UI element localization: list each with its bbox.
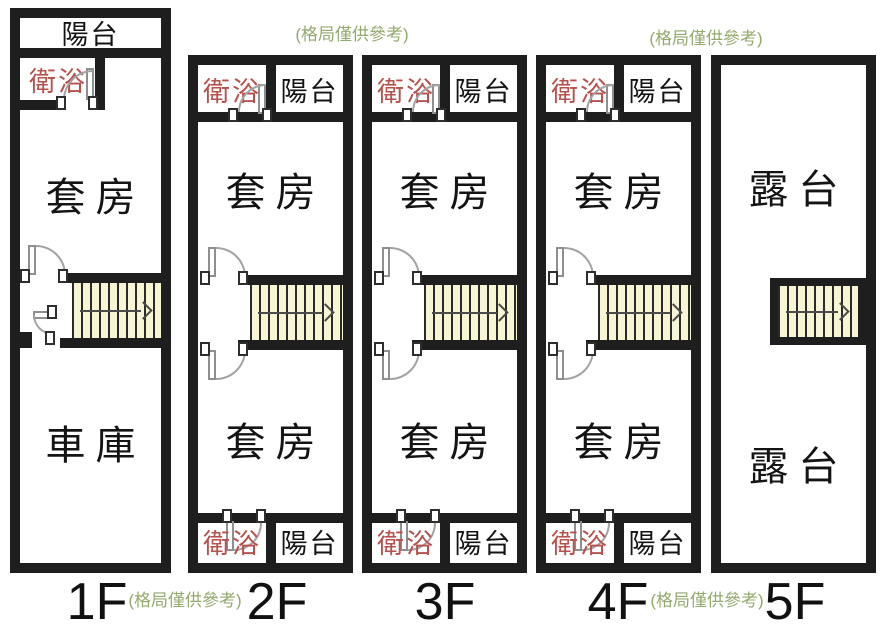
- wall-segment: [60, 273, 161, 283]
- stair-direction-arrow: [258, 312, 323, 314]
- door-jamb: [412, 342, 422, 356]
- room-label-bathroom: 衛浴: [546, 521, 614, 561]
- room-label-suite: 套房: [546, 413, 691, 465]
- stair-arrow-head-icon: [316, 303, 334, 321]
- room-label-balcony: 陽台: [624, 69, 691, 109]
- room-label-balcony: 陽台: [276, 521, 343, 561]
- room-label-suite: 套房: [372, 413, 517, 465]
- wall-segment: [586, 340, 691, 350]
- door-jamb: [412, 271, 422, 285]
- door-jamb: [58, 269, 68, 283]
- door-jamb: [200, 342, 210, 356]
- stair-arrow-head-icon: [831, 302, 849, 320]
- staircase: [72, 283, 161, 338]
- door-jamb: [586, 342, 596, 356]
- wall-segment: [20, 100, 60, 110]
- stair-enclosure: [770, 278, 866, 345]
- reference-note: (格局僅供參考): [586, 24, 826, 49]
- room-label-terrace: 露台: [721, 160, 866, 212]
- door-jamb: [200, 271, 210, 285]
- door-jamb: [238, 271, 248, 285]
- wall-segment: [20, 48, 161, 58]
- door-jamb: [45, 331, 55, 345]
- stair-arrow-head-icon: [134, 301, 152, 319]
- room-label-balcony: 陽台: [624, 521, 691, 561]
- floorplan-canvas: (格局僅供參考) (格局僅供參考) 陽台 衛浴 套房 車庫 衛浴: [0, 0, 889, 630]
- floorplan-1f: 陽台 衛浴 套房 車庫: [10, 8, 171, 573]
- door-jamb: [548, 271, 558, 285]
- stair-arrow-head-icon: [490, 303, 508, 321]
- wall-segment: [238, 340, 343, 350]
- wall-segment: [266, 523, 276, 563]
- door-jamb: [88, 96, 98, 110]
- room-label-balcony: 陽台: [20, 16, 161, 48]
- floor-label-2f: 2F: [247, 572, 308, 632]
- floorplan-5f: 露台 露台: [711, 55, 876, 573]
- door-jamb: [262, 108, 272, 122]
- floorplan-3f: 衛浴 陽台 套房 套房 衛浴 陽台: [362, 55, 527, 573]
- reference-note: (格局僅供參考): [232, 20, 472, 45]
- stair-arrow-head-icon: [664, 303, 682, 321]
- door-jamb: [374, 271, 384, 285]
- floor-label-3f: 3F: [415, 572, 476, 632]
- wall-segment: [614, 65, 624, 112]
- door-jamb: [548, 342, 558, 356]
- door-jamb: [20, 269, 30, 283]
- room-label-balcony: 陽台: [450, 69, 517, 109]
- staircase: [250, 285, 343, 340]
- room-label-garage: 車庫: [20, 416, 161, 468]
- room-label-terrace: 露台: [721, 437, 866, 489]
- room-label-balcony: 陽台: [276, 69, 343, 109]
- room-label-suite: 套房: [198, 163, 343, 215]
- door-jamb: [402, 108, 412, 122]
- door-jamb: [374, 342, 384, 356]
- door-jamb: [586, 271, 596, 285]
- wall-segment: [20, 332, 32, 348]
- wall-segment: [412, 275, 517, 285]
- stair-direction-arrow: [80, 310, 141, 312]
- room-label-bathroom: 衛浴: [372, 521, 440, 561]
- floorplan-4f: 衛浴 陽台 套房 套房 衛浴 陽台: [536, 55, 701, 573]
- wall-segment: [614, 523, 624, 563]
- door-jamb: [610, 108, 620, 122]
- floorplan-2f: 衛浴 陽台 套房 套房 衛浴 陽台: [188, 55, 353, 573]
- staircase: [424, 285, 517, 340]
- stair-direction-arrow: [432, 312, 497, 314]
- room-label-suite: 套房: [372, 163, 517, 215]
- door-jamb: [238, 342, 248, 356]
- wall-segment: [266, 65, 276, 112]
- staircase: [778, 286, 858, 337]
- floor-label-5f: 5F: [765, 572, 826, 632]
- door-jamb: [436, 108, 446, 122]
- room-label-suite: 套房: [546, 163, 691, 215]
- room-label-bathroom: 衛浴: [198, 521, 266, 561]
- wall-segment: [586, 275, 691, 285]
- door-jamb: [56, 96, 66, 110]
- wall-segment: [238, 275, 343, 285]
- staircase: [598, 285, 691, 340]
- door-jamb: [47, 305, 57, 319]
- room-label-suite: 套房: [20, 168, 161, 220]
- wall-segment: [440, 523, 450, 563]
- wall-segment: [440, 65, 450, 112]
- room-label-balcony: 陽台: [450, 521, 517, 561]
- room-label-suite: 套房: [198, 413, 343, 465]
- door-jamb: [228, 108, 238, 122]
- door-jamb: [576, 108, 586, 122]
- wall-segment: [412, 340, 517, 350]
- wall-segment: [60, 338, 161, 348]
- stair-direction-arrow: [606, 312, 671, 314]
